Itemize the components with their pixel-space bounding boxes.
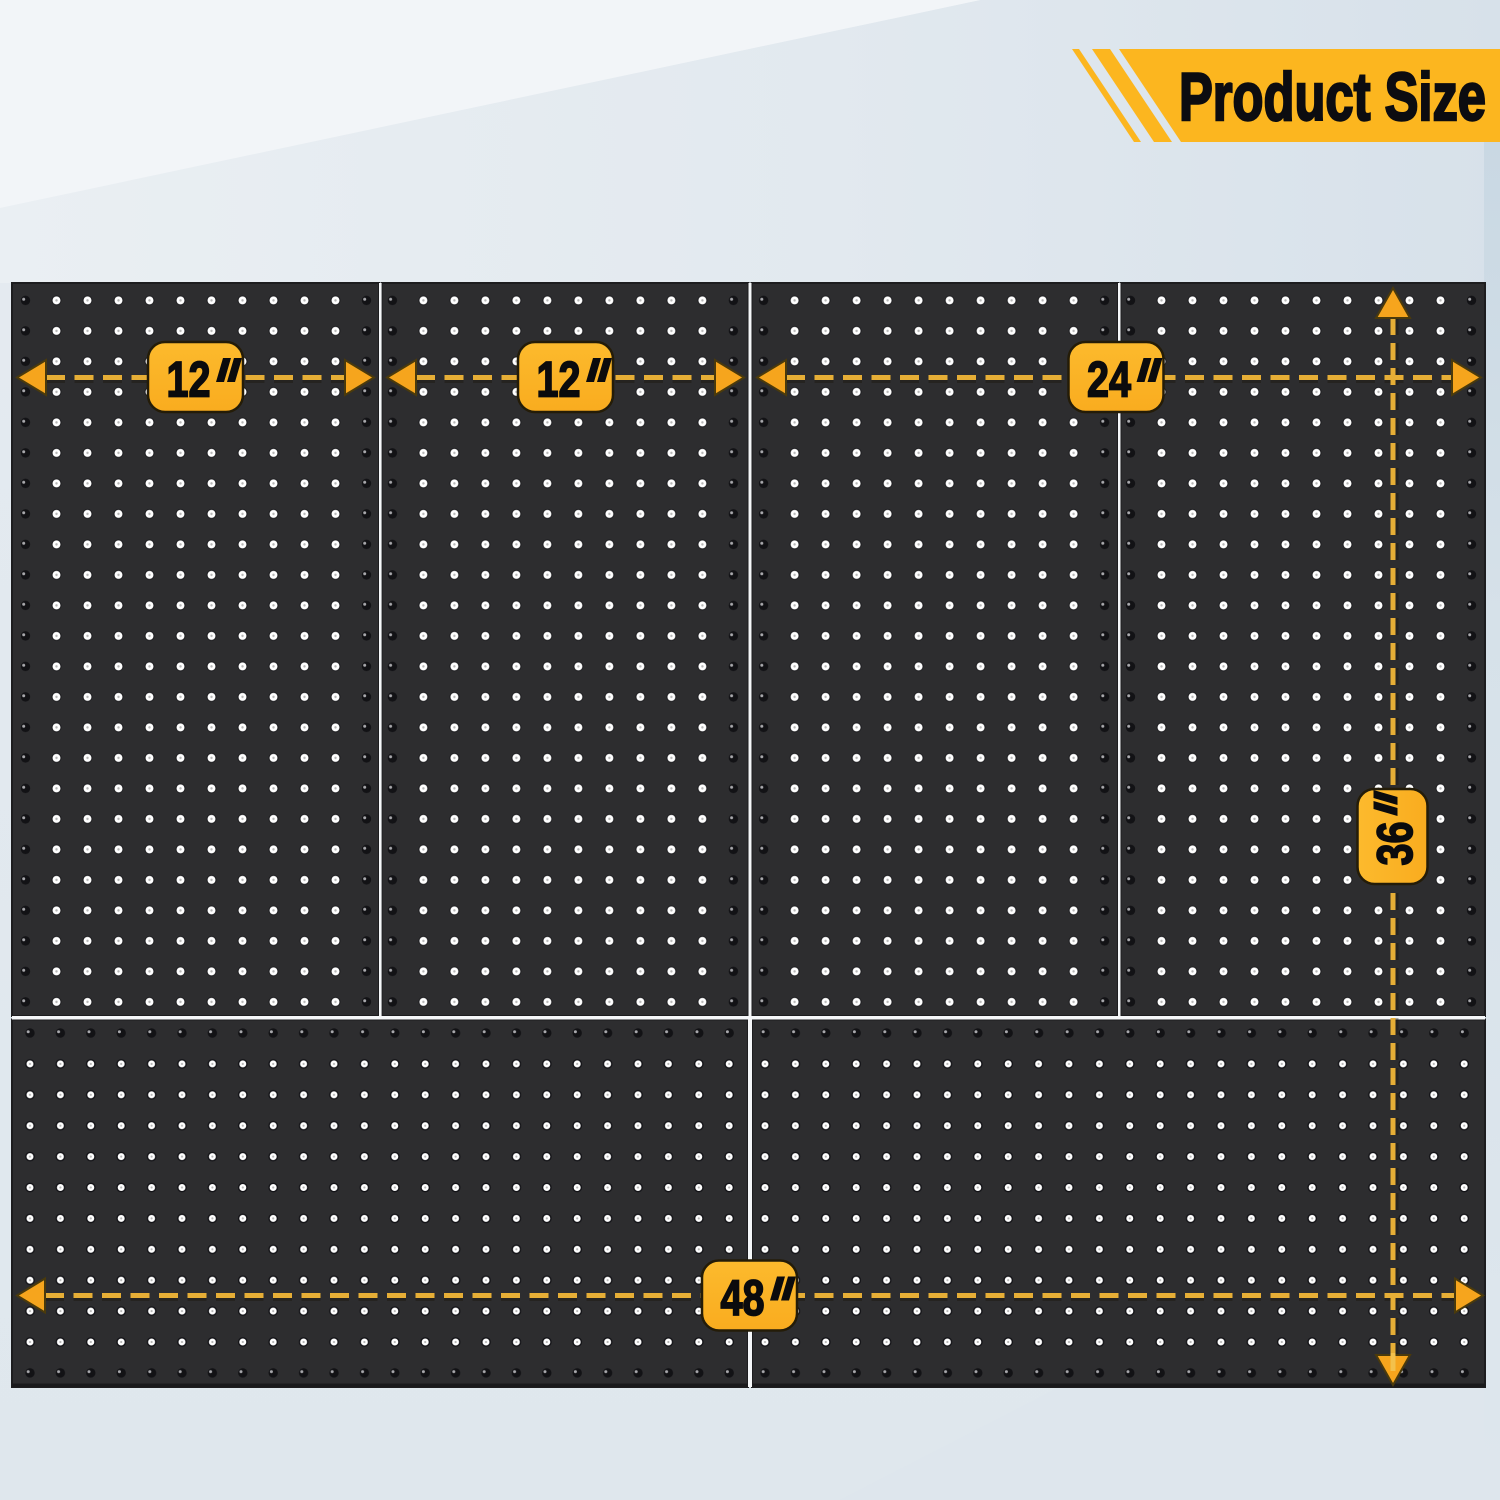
svg-text:36: 36: [1367, 822, 1423, 866]
svg-text:24: 24: [1087, 352, 1131, 408]
svg-text:12: 12: [167, 352, 211, 408]
svg-text:48: 48: [721, 1270, 765, 1326]
svg-text:12: 12: [537, 352, 581, 408]
svg-text:Product Size: Product Size: [1179, 59, 1486, 135]
